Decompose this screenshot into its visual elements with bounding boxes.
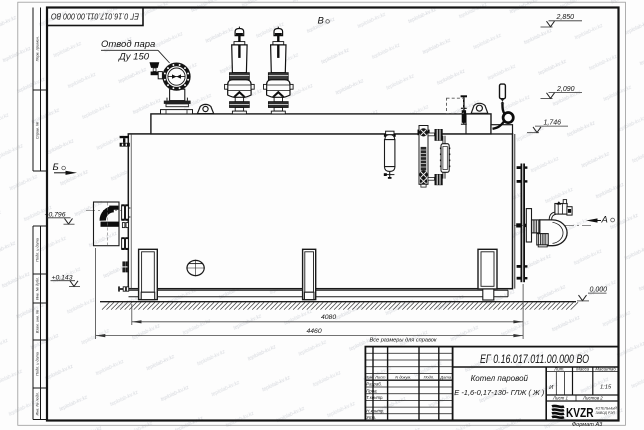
svg-text:Изм.: Изм.: [365, 375, 374, 380]
svg-text:Е -1,6-0,17-130- ГЛЖ ( Ж ): Е -1,6-0,17-130- ГЛЖ ( Ж ): [454, 390, 544, 397]
svg-text:Лист: Лист: [374, 375, 386, 380]
svg-text:КОТЕЛЬНЫЙ: КОТЕЛЬНЫЙ: [596, 407, 618, 411]
svg-text:Взам. инв. №: Взам. инв. №: [35, 310, 39, 333]
svg-text:ЕГ 0.16.017.011.00.000 ВО: ЕГ 0.16.017.011.00.000 ВО: [50, 12, 139, 21]
svg-text:Масштаб: Масштаб: [595, 367, 616, 372]
svg-text:Н.контр.: Н.контр.: [366, 409, 384, 414]
svg-text:Лист 1: Лист 1: [552, 396, 569, 401]
svg-text:Котел паровой: Котел паровой: [471, 374, 529, 383]
svg-text:Дата: Дата: [439, 375, 451, 380]
svg-text:А: А: [601, 215, 608, 226]
svg-text:Т.контр.: Т.контр.: [366, 395, 383, 400]
svg-text:Подп. и дата: Подп. и дата: [35, 352, 39, 376]
svg-text:N докум.: N докум.: [395, 375, 411, 380]
svg-text:Масса: Масса: [576, 367, 590, 372]
svg-text:Перв. примен.: Перв. примен.: [35, 36, 39, 61]
svg-text:KVZR: KVZR: [566, 405, 594, 420]
svg-text:Инв. № подл.: Инв. № подл.: [35, 392, 39, 416]
svg-text:Все размеры для справок: Все размеры для справок: [370, 338, 437, 344]
svg-text:В: В: [318, 16, 325, 27]
svg-text:4080: 4080: [321, 314, 336, 321]
svg-text:Утв.: Утв.: [366, 415, 376, 420]
svg-text:1:15: 1:15: [600, 385, 612, 391]
svg-text:ЕГ 0.16.017.011.00.000 ВО: ЕГ 0.16.017.011.00.000 ВО: [480, 354, 589, 366]
svg-text:2,850: 2,850: [556, 14, 575, 21]
svg-text:Подп. и дата: Подп. и дата: [35, 238, 39, 262]
svg-text:4460: 4460: [307, 328, 322, 335]
svg-text:Формат А3: Формат А3: [572, 422, 603, 428]
svg-text:Инв. № дубл.: Инв. № дубл.: [35, 277, 39, 300]
svg-text:1,746: 1,746: [544, 119, 562, 126]
svg-text:ЗАВОД РЭП: ЗАВОД РЭП: [596, 411, 616, 415]
svg-text:Ду 150: Ду 150: [118, 52, 150, 63]
svg-text:2,090: 2,090: [556, 86, 575, 93]
svg-text:Пров.: Пров.: [366, 388, 377, 393]
svg-text:Листов 2: Листов 2: [582, 396, 603, 401]
svg-text:0,000: 0,000: [590, 286, 608, 293]
svg-text:Отвод пара: Отвод пара: [101, 39, 155, 50]
svg-text:Подп.: Подп.: [424, 375, 435, 380]
svg-text:Справ. №: Справ. №: [35, 122, 39, 139]
svg-text:Лит.: Лит.: [553, 367, 564, 372]
svg-text:Б: Б: [53, 162, 59, 173]
svg-text:Разраб.: Разраб.: [366, 382, 382, 387]
